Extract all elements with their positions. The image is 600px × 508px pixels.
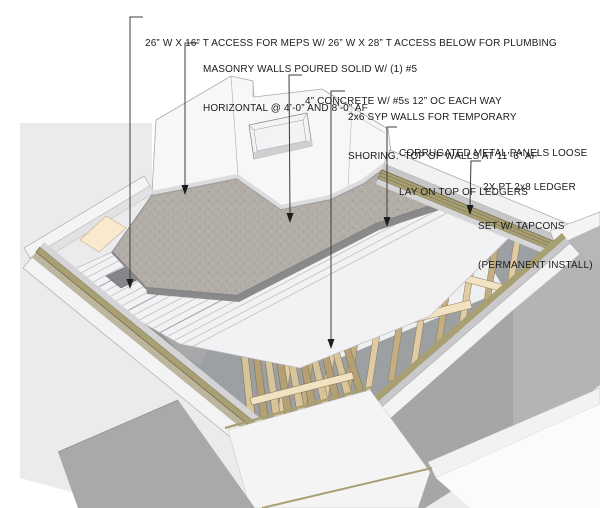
annotation-text: (PERMANENT INSTALL): [478, 259, 593, 272]
annotation-text: 2X PT 2x8 LEDGER: [478, 181, 593, 194]
annotation-ledger: 2X PT 2x8 LEDGER SET W/ TAPCONS (PERMANE…: [478, 155, 593, 285]
annotation-text: SET W/ TAPCONS: [478, 220, 593, 233]
construction-drawing-canvas: 26” W X 16” T ACCESS FOR MEPS W/ 26” W X…: [0, 0, 600, 508]
